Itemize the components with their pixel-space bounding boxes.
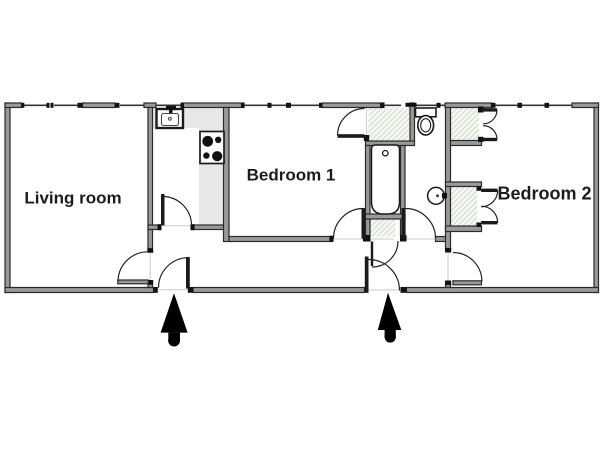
svg-text:Living room: Living room [24,188,121,207]
svg-text:Bedroom 2: Bedroom 2 [497,183,591,203]
svg-text:Bedroom 1: Bedroom 1 [247,165,336,184]
